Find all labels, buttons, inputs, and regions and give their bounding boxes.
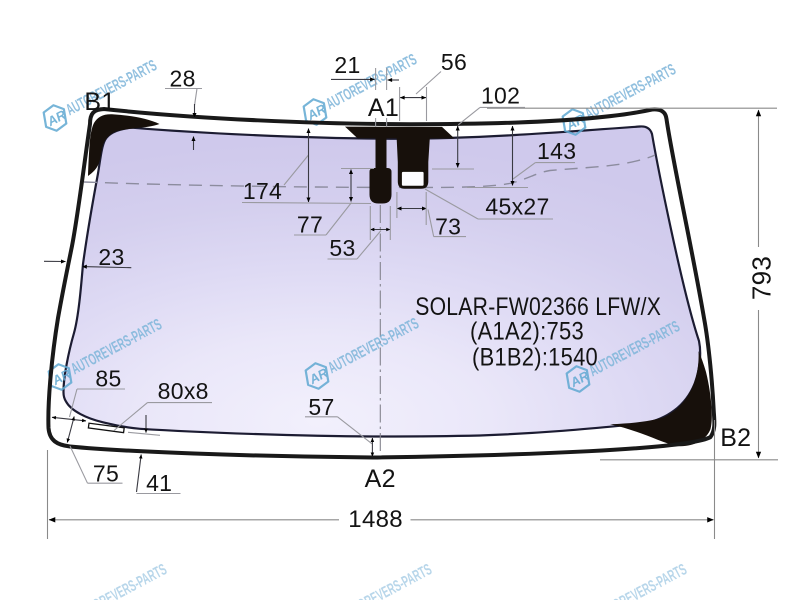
svg-text:75: 75 bbox=[93, 461, 119, 487]
svg-text:80x8: 80x8 bbox=[158, 378, 209, 404]
svg-text:21: 21 bbox=[334, 52, 360, 78]
svg-text:41: 41 bbox=[146, 470, 172, 496]
svg-text:B2: B2 bbox=[720, 424, 751, 452]
svg-text:793: 793 bbox=[747, 256, 777, 300]
svg-text:(B1B2):1540: (B1B2):1540 bbox=[472, 344, 598, 372]
svg-text:A2: A2 bbox=[365, 465, 396, 493]
svg-text:B1: B1 bbox=[84, 88, 115, 116]
svg-text:57: 57 bbox=[308, 394, 334, 420]
svg-text:73: 73 bbox=[435, 214, 461, 240]
svg-text:53: 53 bbox=[329, 235, 355, 261]
svg-text:174: 174 bbox=[243, 178, 282, 204]
svg-text:45x27: 45x27 bbox=[485, 194, 549, 220]
svg-text:28: 28 bbox=[170, 66, 196, 92]
svg-text:(A1A2):753: (A1A2):753 bbox=[470, 318, 584, 346]
svg-text:85: 85 bbox=[95, 365, 121, 391]
svg-text:143: 143 bbox=[537, 138, 576, 164]
svg-text:1488: 1488 bbox=[348, 506, 403, 533]
svg-text:77: 77 bbox=[297, 212, 323, 238]
svg-text:102: 102 bbox=[481, 83, 520, 109]
svg-text:56: 56 bbox=[441, 49, 467, 75]
svg-text:A1: A1 bbox=[368, 94, 399, 122]
svg-text:23: 23 bbox=[98, 244, 124, 270]
